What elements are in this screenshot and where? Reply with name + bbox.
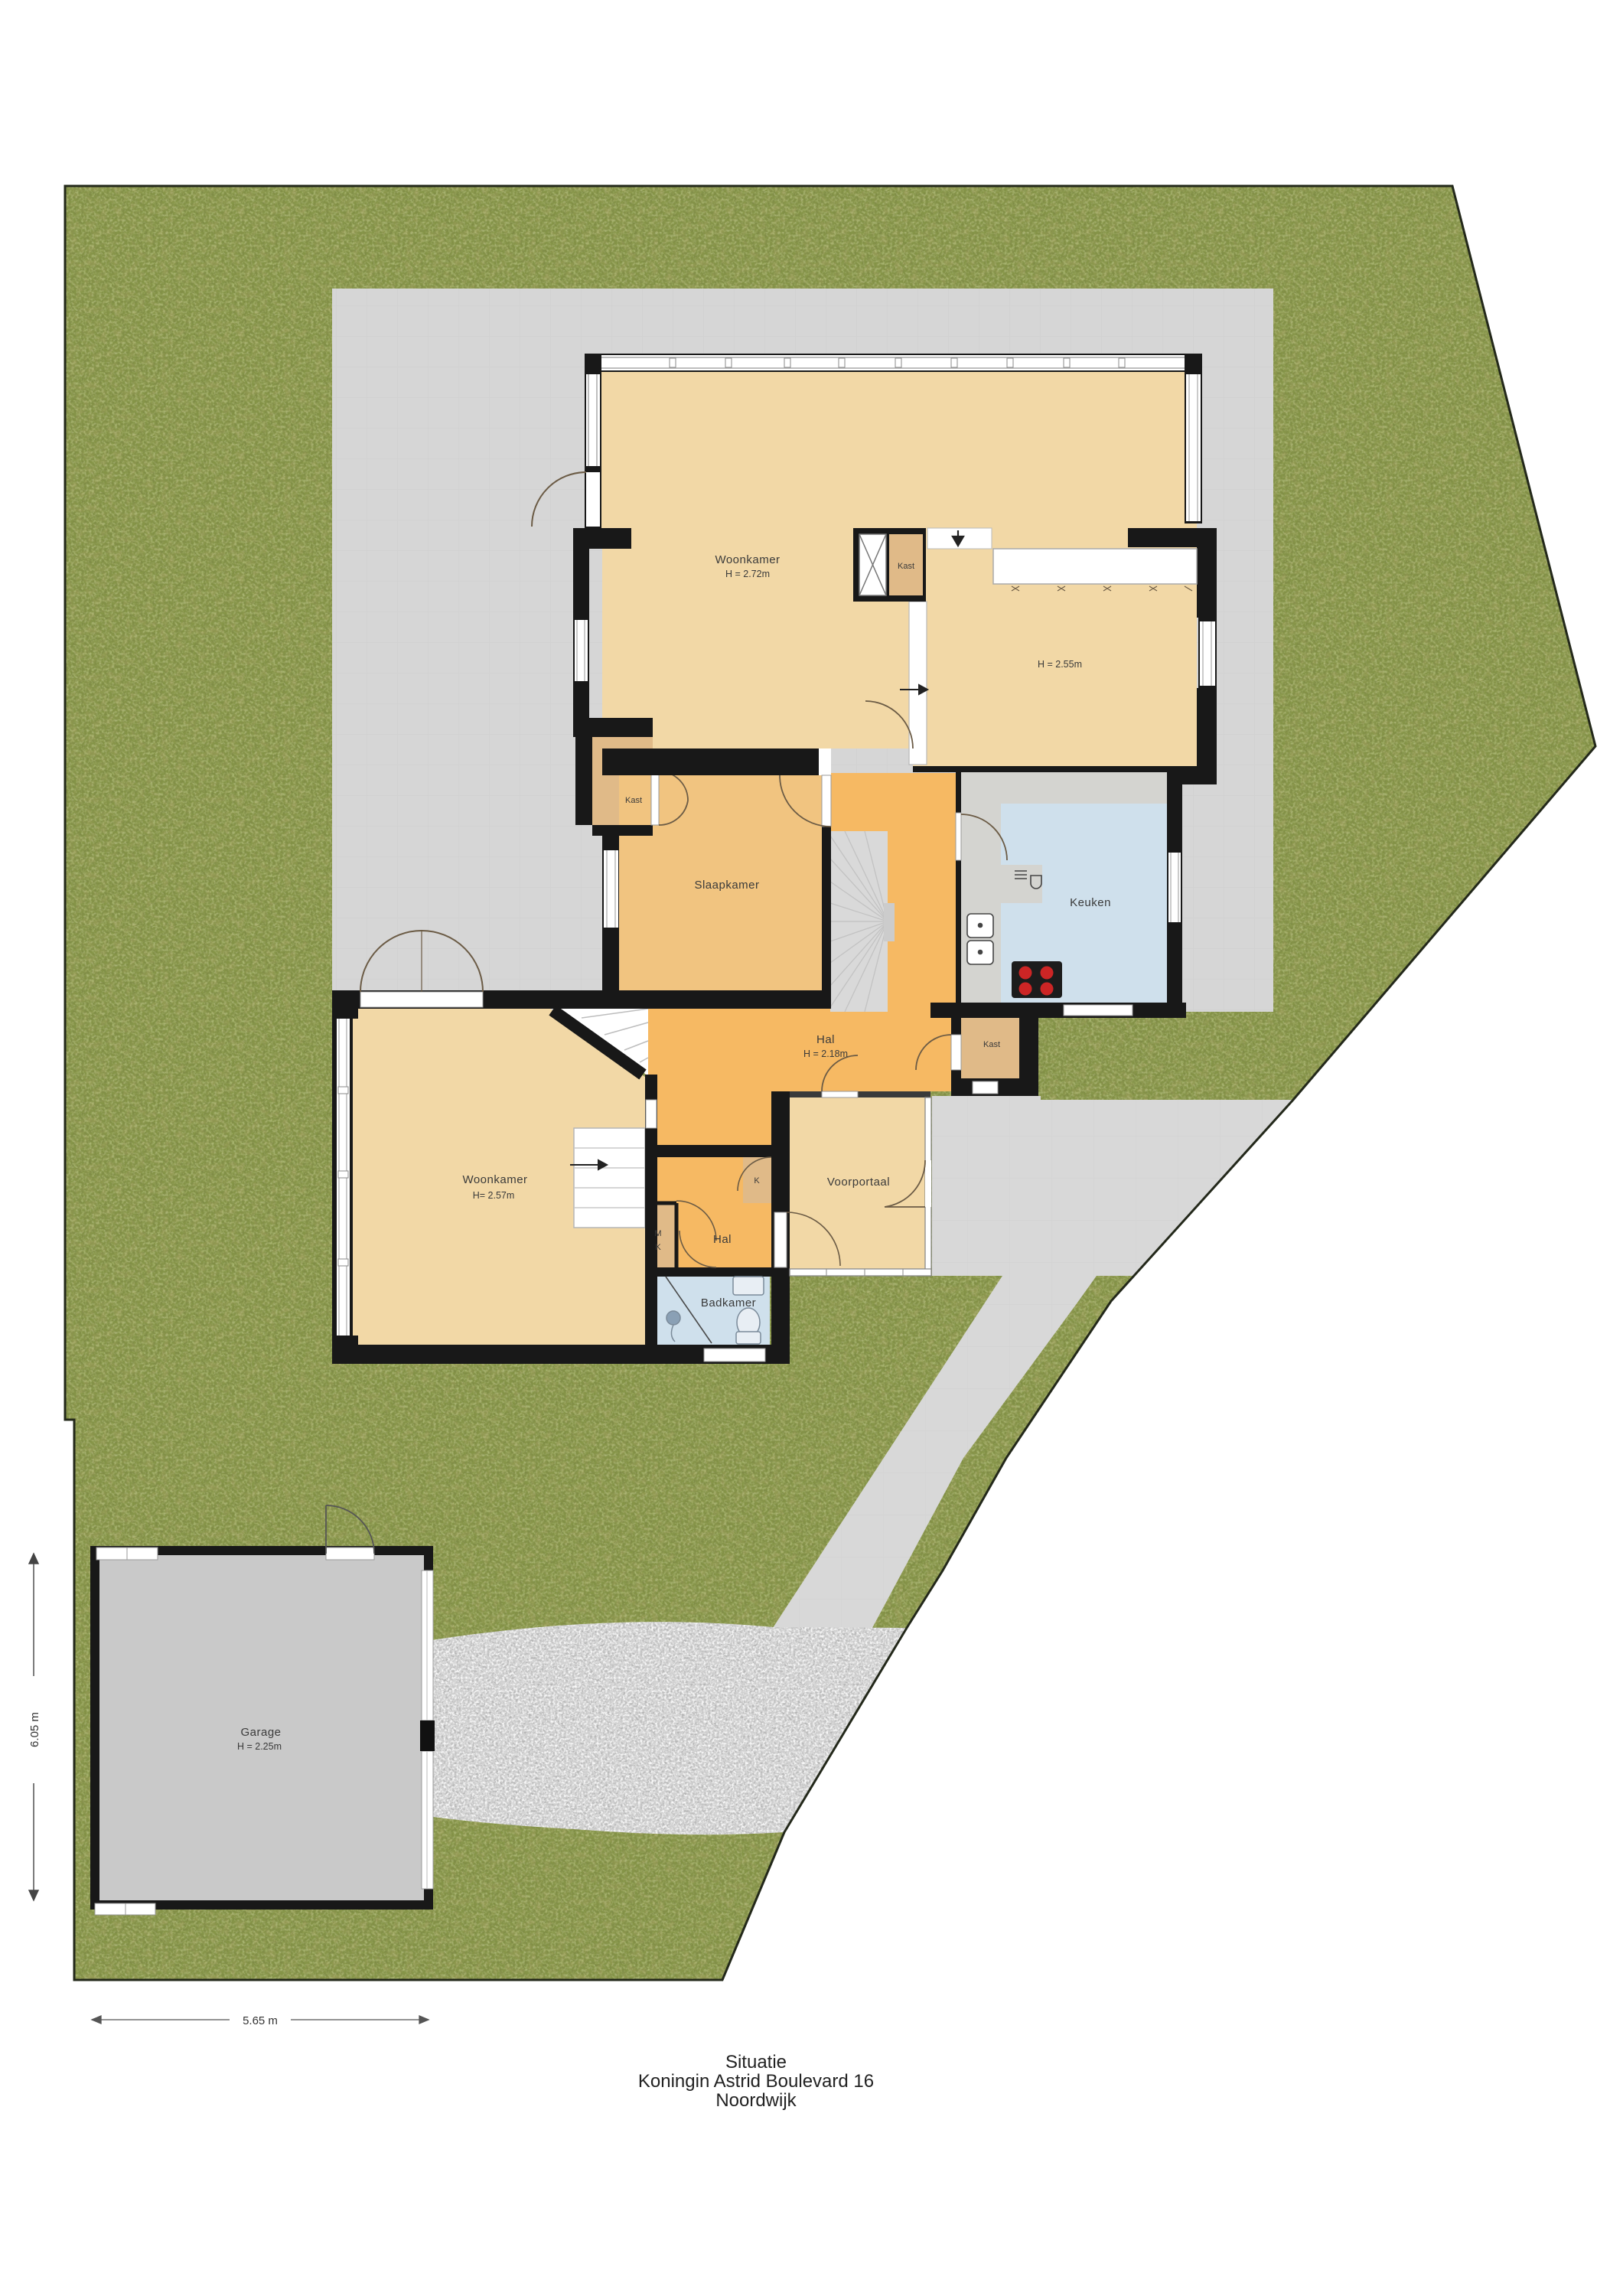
svg-text:H= 2.57m: H= 2.57m — [473, 1190, 515, 1201]
svg-text:H = 2.18m: H = 2.18m — [803, 1049, 848, 1059]
svg-text:M: M — [654, 1229, 661, 1238]
svg-text:H = 2.72m: H = 2.72m — [725, 569, 770, 579]
svg-text:H = 2.25m: H = 2.25m — [237, 1741, 282, 1752]
svg-text:Koningin Astrid Boulevard 16: Koningin Astrid Boulevard 16 — [638, 2071, 874, 2092]
svg-text:Woonkamer: Woonkamer — [462, 1173, 527, 1186]
svg-text:Badkamer: Badkamer — [701, 1296, 756, 1309]
svg-text:Situatie: Situatie — [725, 2052, 787, 2073]
svg-text:Noordwijk: Noordwijk — [715, 2090, 797, 2111]
svg-text:6.05 m: 6.05 m — [28, 1712, 41, 1747]
svg-text:5.65 m: 5.65 m — [243, 2014, 278, 2027]
svg-text:Woonkamer: Woonkamer — [715, 553, 780, 566]
svg-text:Hal: Hal — [816, 1033, 835, 1046]
svg-text:Hal: Hal — [713, 1233, 732, 1246]
svg-text:Kast: Kast — [983, 1040, 1000, 1049]
svg-text:Garage: Garage — [240, 1726, 281, 1739]
svg-text:Kast: Kast — [898, 562, 914, 571]
svg-text:Keuken: Keuken — [1070, 896, 1111, 909]
svg-text:K: K — [655, 1243, 661, 1252]
svg-text:Slaapkamer: Slaapkamer — [694, 879, 759, 892]
svg-text:H = 2.55m: H = 2.55m — [1038, 659, 1082, 670]
svg-text:Kast: Kast — [625, 796, 642, 805]
svg-text:Voorportaal: Voorportaal — [827, 1176, 890, 1189]
svg-text:K: K — [754, 1176, 760, 1186]
